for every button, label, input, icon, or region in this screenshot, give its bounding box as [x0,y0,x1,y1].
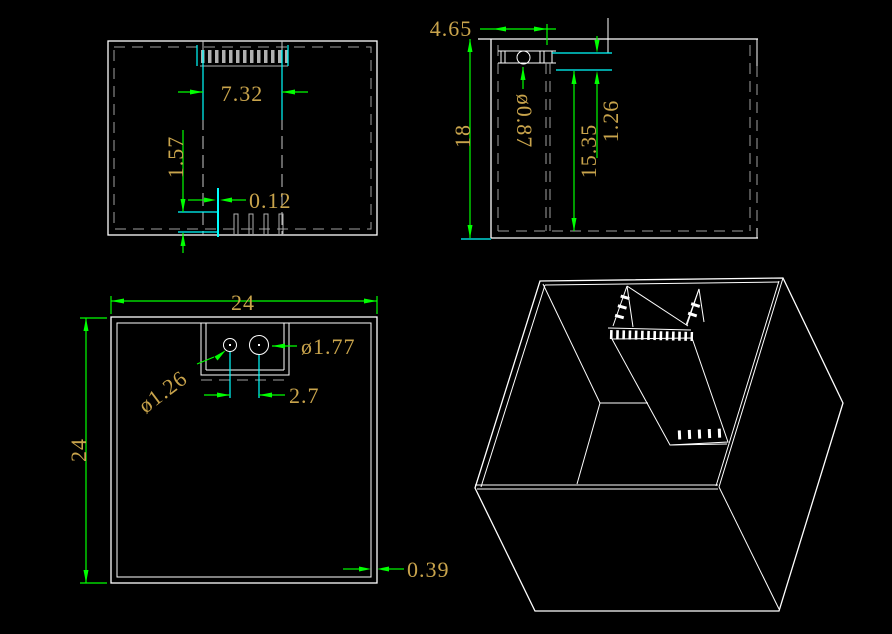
dim-wall-thickness-text: 0.39 [407,557,450,582]
dim-plan-width-text: 24 [231,290,255,315]
small-hole-center [229,344,231,346]
cad-drawing-canvas: 7.32 1.57 0.12 [0,0,892,634]
dim-hole-spacing-text: 2.7 [289,383,320,408]
dim-plate-thickness-text: 0.12 [249,188,292,213]
cad-drawing: 7.32 1.57 0.12 [0,0,892,634]
dim-weir-width-text: 7.32 [221,81,264,106]
dim-weir-offset-text: 4.65 [430,16,473,41]
dim-plan-depth-text: 24 [66,438,91,462]
dim-hole-diameter-text: ø0.87 [512,94,537,149]
large-hole-center [258,344,260,346]
dim-box-height-text: 18 [450,124,475,148]
dim-notch-height-text: 1.57 [163,136,188,179]
dim-top-gap-text: 1.26 [598,100,623,143]
dim-large-hole-text: ø1.77 [301,334,356,359]
